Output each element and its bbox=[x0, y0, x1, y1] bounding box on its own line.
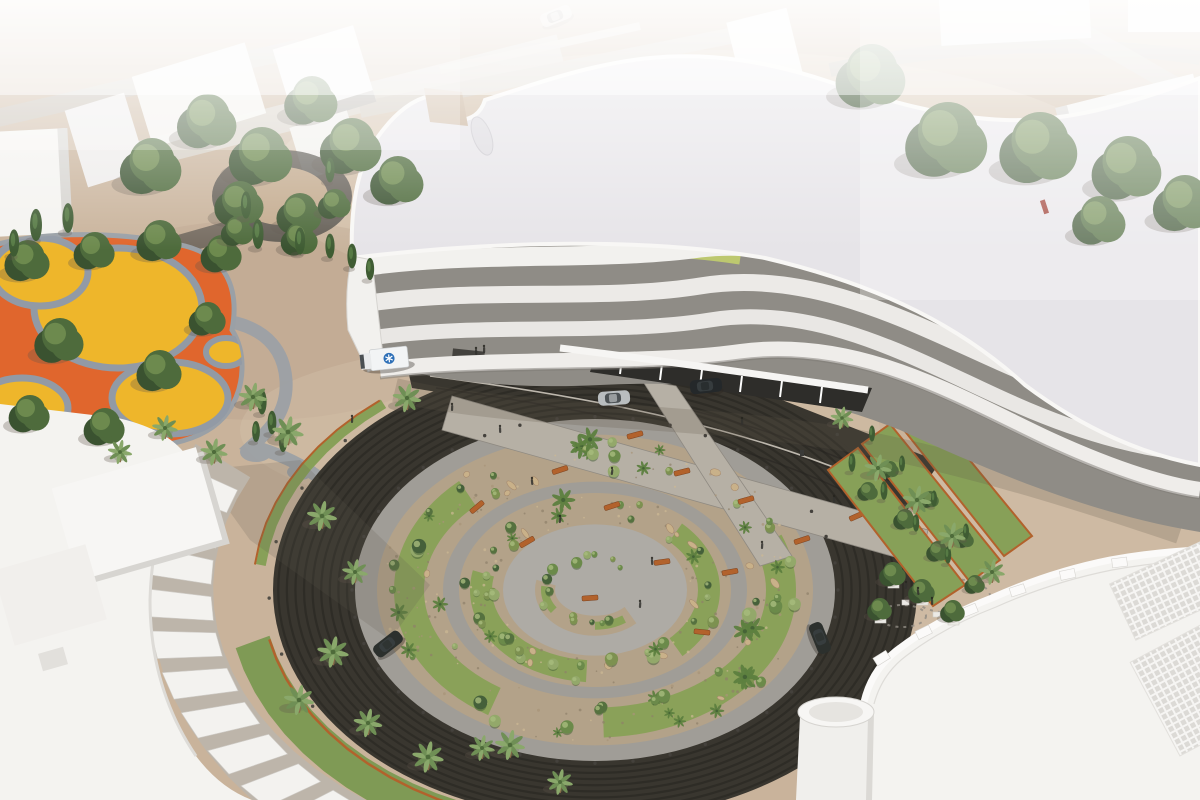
architectural-rendering bbox=[0, 0, 1200, 800]
rendering-stage bbox=[0, 0, 1200, 800]
trash-bin bbox=[800, 450, 804, 456]
cylindrical-tower bbox=[796, 697, 874, 800]
